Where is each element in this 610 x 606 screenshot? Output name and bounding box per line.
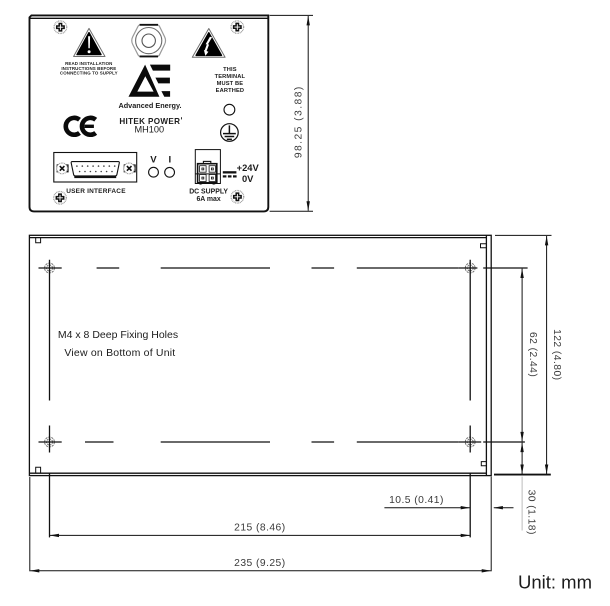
svg-text:+24V: +24V xyxy=(237,162,260,173)
svg-text:TERMINAL: TERMINAL xyxy=(215,74,246,80)
svg-text:THIS: THIS xyxy=(223,67,237,73)
svg-text:0V: 0V xyxy=(242,173,254,184)
svg-text:I: I xyxy=(168,154,171,165)
svg-text:Advanced Energy.: Advanced Energy. xyxy=(118,101,181,110)
svg-text:EARTHED: EARTHED xyxy=(216,88,245,94)
svg-text:10.5 (0.41): 10.5 (0.41) xyxy=(389,495,444,506)
svg-text:30 (1.18): 30 (1.18) xyxy=(526,490,537,535)
svg-text:Unit: mm: Unit: mm xyxy=(518,572,592,593)
svg-text:215 (8.46): 215 (8.46) xyxy=(234,523,285,534)
svg-text:USER INTERFACE: USER INTERFACE xyxy=(66,188,126,195)
svg-text:DC SUPPLY: DC SUPPLY xyxy=(189,189,228,196)
svg-text:122 (4.80): 122 (4.80) xyxy=(551,329,562,380)
svg-text:MH100: MH100 xyxy=(134,124,164,134)
svg-text:M4 x 8 Deep Fixing Holes: M4 x 8 Deep Fixing Holes xyxy=(58,329,178,341)
svg-text:View on Bottom of Unit: View on Bottom of Unit xyxy=(64,347,175,359)
svg-text:CONNECTING TO SUPPLY: CONNECTING TO SUPPLY xyxy=(60,71,118,76)
svg-text:62 (2.44): 62 (2.44) xyxy=(527,332,538,377)
svg-text:MUST BE: MUST BE xyxy=(217,81,244,87)
svg-text:98.25 (3.88): 98.25 (3.88) xyxy=(294,85,305,158)
svg-text:235 (9.25): 235 (9.25) xyxy=(234,558,285,569)
svg-text:V: V xyxy=(150,154,157,165)
svg-text:6A max: 6A max xyxy=(196,196,220,203)
